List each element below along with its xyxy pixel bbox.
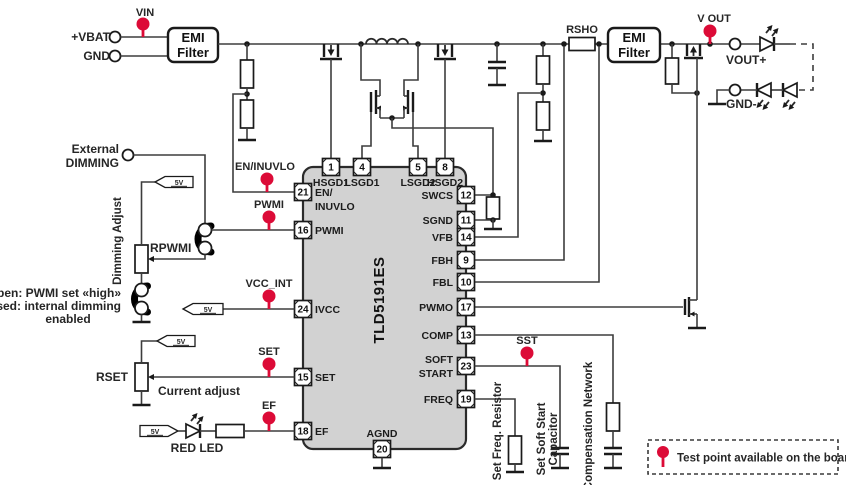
svg-text:VFB: VFB — [432, 232, 453, 244]
svg-text:1: 1 — [328, 163, 334, 174]
dimming-adjust-label: Dimming Adjust — [112, 197, 124, 285]
svg-text:10: 10 — [460, 278, 472, 289]
vin-test-point-label: VIN — [136, 7, 154, 19]
led-1 — [760, 25, 790, 51]
divider-resistor-bottom — [241, 100, 254, 128]
gnd-minus-label: GND- — [726, 97, 757, 111]
external-dimming-terminal — [123, 150, 134, 161]
svg-text:5: 5 — [415, 163, 421, 174]
jumper-note-line3: enabled — [45, 312, 90, 326]
emi-filter-output-line2: Filter — [618, 45, 650, 60]
svg-text:5V: 5V — [204, 307, 213, 314]
svg-text:IVCC: IVCC — [315, 304, 341, 316]
svg-text:14: 14 — [460, 233, 472, 244]
comp-resistor — [607, 403, 620, 431]
ivcc-supply: 5V VCC_INT — [183, 278, 295, 315]
error-flag-led-circuit: 5V RED LED EF — [140, 400, 295, 455]
high-side-mosfet-2 — [434, 44, 456, 159]
tld5191es-ic: TLD5191ES 1 HSGD1 4 LSGD1 5 LSGD2 8 HSGD… — [295, 159, 475, 469]
svg-text:23: 23 — [460, 362, 472, 373]
vout-plus-label: VOUT+ — [726, 53, 766, 67]
net-flag-5v-ivcc: 5V — [183, 304, 223, 315]
feedback-resistor-top — [537, 56, 550, 84]
pin-ivcc: 24 IVCC — [295, 301, 341, 318]
gate-pullup-resistor — [666, 58, 679, 84]
svg-text:SGND: SGND — [423, 215, 454, 227]
external-dimming-label-line1: External — [72, 142, 119, 156]
red-led — [186, 413, 204, 438]
sst-test-point-label: SST — [516, 335, 538, 347]
input-gnd-label: GND — [83, 49, 110, 63]
external-dimming-label-line2: DIMMING — [66, 156, 119, 170]
pin-comp: 13 COMP — [422, 327, 475, 344]
pwmi-test-point-label: PWMI — [254, 199, 284, 211]
test-point-sst: SST — [516, 335, 538, 366]
svg-text:FBH: FBH — [431, 255, 453, 267]
test-point-ef: EF — [262, 400, 276, 431]
test-point-vcc-int: VCC_INT — [245, 278, 292, 309]
soft-start-label-line2: Capacitor — [548, 412, 560, 466]
pin-set: 15 SET — [295, 369, 337, 386]
output-disconnect-switch — [666, 44, 704, 300]
svg-text:21: 21 — [297, 188, 309, 199]
high-side-mosfet-1 — [320, 44, 342, 159]
pin-ef: 18 EF — [295, 423, 330, 440]
svg-text:4: 4 — [359, 163, 365, 174]
led-2 — [771, 83, 797, 110]
set-freq-resistor-label: Set Freq. Resistor — [492, 381, 504, 480]
jumper-note-line1: Open: PWMI set «high» — [0, 286, 121, 300]
input-section: +VBAT GND VIN EMI Filter — [71, 7, 218, 63]
divider-resistor-top — [241, 60, 254, 88]
rpwmi-potentiometer: Dimming Adjust RPWMI 5V — [112, 177, 193, 285]
svg-text:LSGD1: LSGD1 — [344, 177, 379, 189]
pwmo-nmos-driver — [475, 297, 707, 328]
svg-text:5V: 5V — [177, 339, 186, 346]
svg-text:9: 9 — [463, 256, 469, 267]
test-point-vin: VIN — [136, 7, 154, 37]
svg-text:SOFT: SOFT — [425, 354, 454, 366]
emi-filter-input-line1: EMI — [181, 30, 204, 45]
output-capacitor — [488, 44, 506, 85]
en-inuvlo-divider: EN/INUVLO — [233, 44, 295, 192]
emi-filter-output: EMI Filter — [608, 28, 660, 62]
svg-text:5V: 5V — [175, 180, 184, 187]
svg-text:8: 8 — [442, 163, 448, 174]
external-led-string-wire — [790, 44, 813, 90]
vfb-wire — [475, 93, 541, 237]
svg-text:15: 15 — [297, 373, 309, 384]
jumper-note-line2: Closed: internal dimming — [0, 299, 121, 313]
svg-text:19: 19 — [460, 395, 472, 406]
en-inuvlo-test-point-label: EN/INUVLO — [235, 161, 295, 173]
pin-sgnd: 11 SGND — [423, 212, 475, 229]
power-rail — [218, 41, 813, 90]
vbat-terminal — [110, 32, 121, 43]
test-point-en-inuvlo: EN/INUVLO — [235, 161, 295, 192]
svg-text:13: 13 — [460, 331, 472, 342]
rset-label: RSET — [96, 370, 129, 384]
led-series-resistor — [216, 425, 244, 438]
svg-text:5V: 5V — [151, 429, 160, 436]
svg-text:FREQ: FREQ — [424, 394, 453, 406]
input-gnd-terminal — [110, 51, 121, 62]
rsho-label: RSHO — [566, 24, 598, 36]
current-adjust-label: Current adjust — [158, 384, 240, 398]
frequency-set-network: Set Freq. Resistor — [475, 381, 525, 480]
svg-text:COMP: COMP — [422, 330, 454, 342]
svg-text:SET: SET — [315, 372, 336, 384]
pin-freq: 19 FREQ — [424, 391, 475, 408]
vcc-int-test-point-label: VCC_INT — [245, 278, 292, 290]
legend-text: Test point available on the board — [677, 453, 846, 465]
switch-current-sense-resistor — [475, 192, 503, 229]
set-test-point-label: SET — [258, 346, 280, 358]
schematic-page: +VBAT GND VIN EMI Filter — [0, 0, 846, 485]
svg-text:FBL: FBL — [433, 277, 454, 289]
rset-potentiometer: 5V RSET Current adjust SET — [96, 336, 295, 406]
red-led-label: RED LED — [171, 441, 224, 455]
emi-filter-input: EMI Filter — [168, 28, 218, 62]
test-point-set: SET — [258, 346, 280, 377]
svg-text:EF: EF — [315, 426, 329, 438]
pin-fbh: 9 FBH — [431, 252, 474, 269]
svg-text:AGND: AGND — [367, 428, 398, 440]
svg-text:START: START — [419, 368, 454, 380]
emi-filter-input-line2: Filter — [177, 45, 209, 60]
tld5191es-application-schematic: +VBAT GND VIN EMI Filter — [0, 0, 846, 485]
svg-text:17: 17 — [460, 303, 472, 314]
svg-text:18: 18 — [297, 427, 309, 438]
ic-part-number: TLD5191ES — [371, 256, 388, 343]
svg-text:EN/: EN/ — [315, 187, 333, 199]
svg-text:11: 11 — [461, 216, 472, 227]
freq-resistor — [509, 436, 522, 464]
pin-pwmo: 17 PWMO — [419, 299, 474, 316]
internal-dimming-jumper: Open: PWMI set «high» Closed: internal d… — [0, 284, 151, 327]
svg-text:SWCS: SWCS — [422, 190, 454, 202]
net-flag-5v-dimming: 5V — [155, 177, 193, 188]
test-point-pwmi: PWMI — [254, 199, 284, 230]
svg-text:20: 20 — [376, 445, 388, 456]
test-point-v-out: V OUT — [697, 13, 731, 44]
svg-text:PWMO: PWMO — [419, 302, 453, 314]
output-section: V OUT VOUT+ GND- — [697, 13, 797, 111]
svg-text:INUVLO: INUVLO — [315, 201, 355, 213]
soft-start-label-line1: Set Soft Start — [536, 402, 548, 475]
emi-filter-output-line1: EMI — [622, 30, 645, 45]
ef-test-point-label: EF — [262, 400, 276, 412]
rpwmi-label: RPWMI — [150, 241, 191, 255]
v-out-test-point-label: V OUT — [697, 13, 731, 25]
pin-pwmi: 16 PWMI — [295, 222, 344, 239]
svg-text:24: 24 — [297, 305, 309, 316]
gnd-minus-terminal — [730, 85, 741, 96]
compensation-network-label: Compensation Network — [583, 361, 595, 485]
net-flag-5v-led: 5V — [140, 426, 178, 437]
feedback-resistor-bottom — [537, 102, 550, 130]
svg-text:16: 16 — [297, 226, 309, 237]
rsho-shunt-resistor: RSHO — [566, 24, 598, 51]
pin-swcs: 12 SWCS — [422, 187, 475, 204]
vbat-label: +VBAT — [71, 30, 110, 44]
vout-plus-terminal — [730, 39, 741, 50]
svg-text:PWMI: PWMI — [315, 225, 344, 237]
legend: Test point available on the board — [648, 440, 846, 474]
net-flag-5v-rset: 5V — [157, 336, 195, 347]
svg-text:12: 12 — [460, 191, 472, 202]
